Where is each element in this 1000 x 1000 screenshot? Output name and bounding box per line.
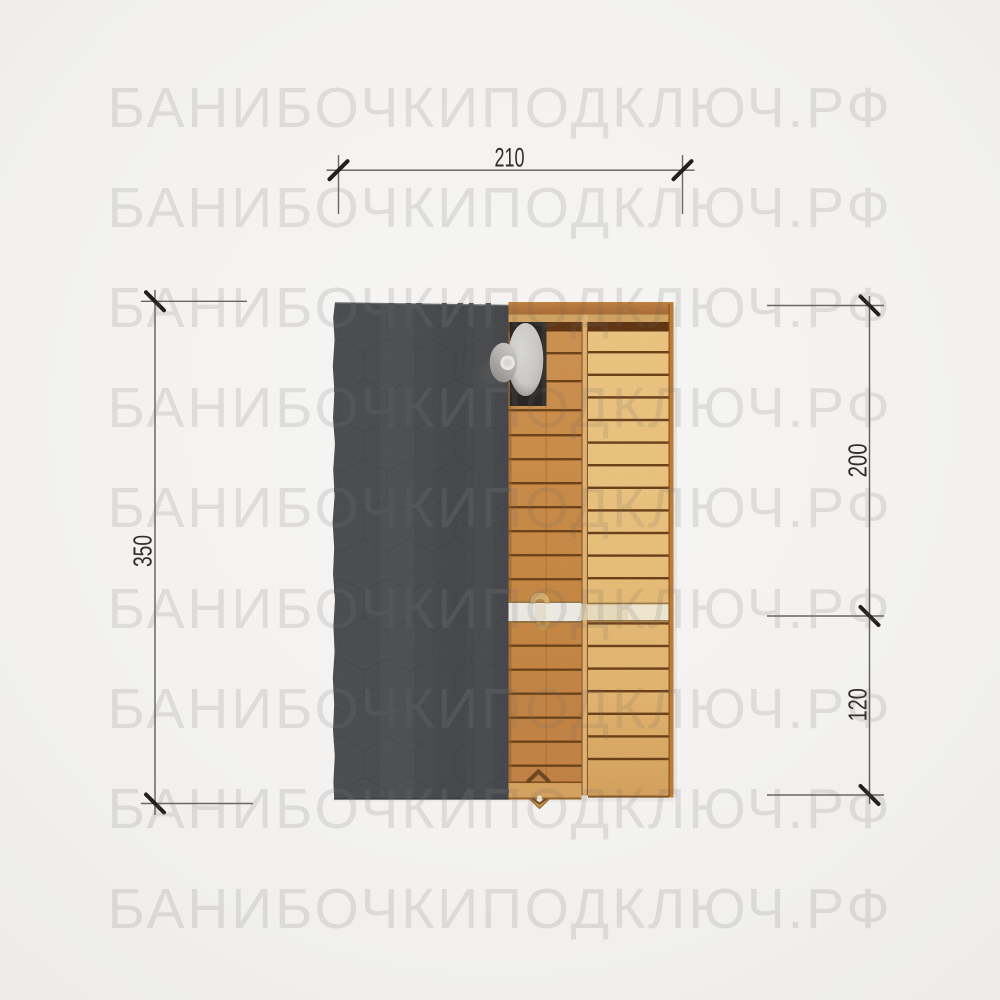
svg-text:210: 210 xyxy=(495,142,525,172)
svg-text:200: 200 xyxy=(845,443,873,477)
